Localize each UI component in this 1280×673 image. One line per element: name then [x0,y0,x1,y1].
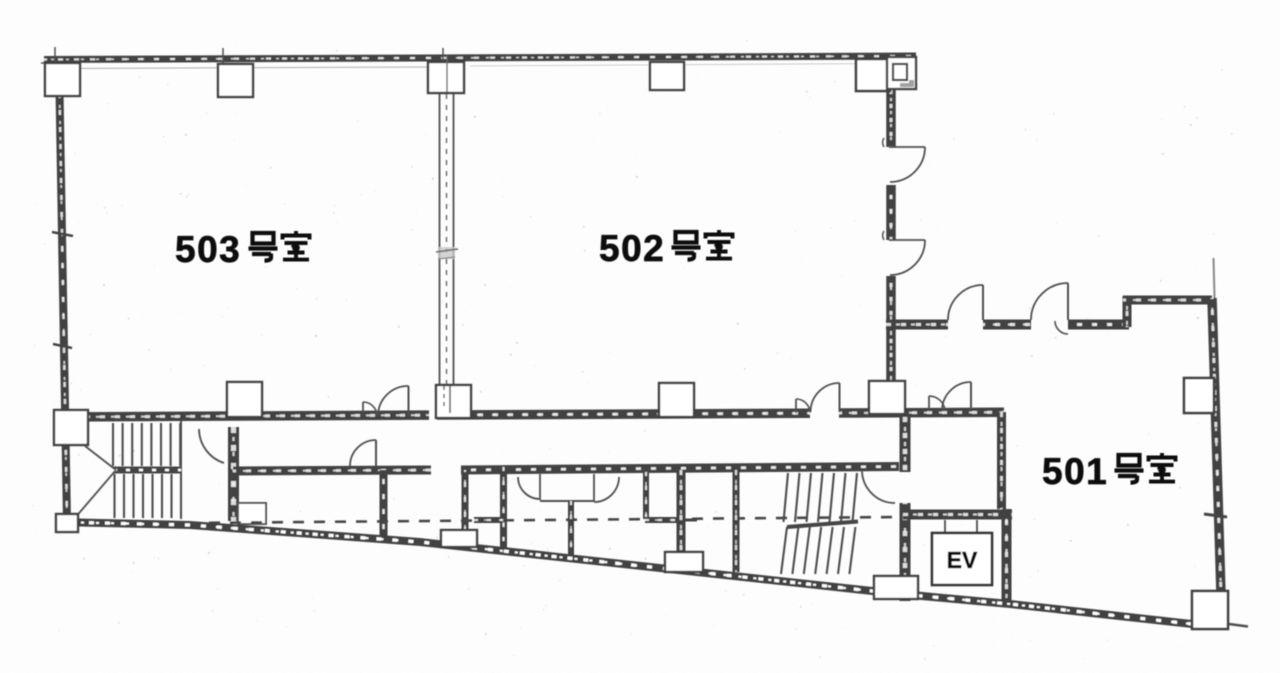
svg-text:503: 503 [175,229,241,270]
svg-text:501: 501 [1042,451,1108,492]
svg-text:EV: EV [947,547,978,573]
svg-text:502: 502 [599,228,665,269]
